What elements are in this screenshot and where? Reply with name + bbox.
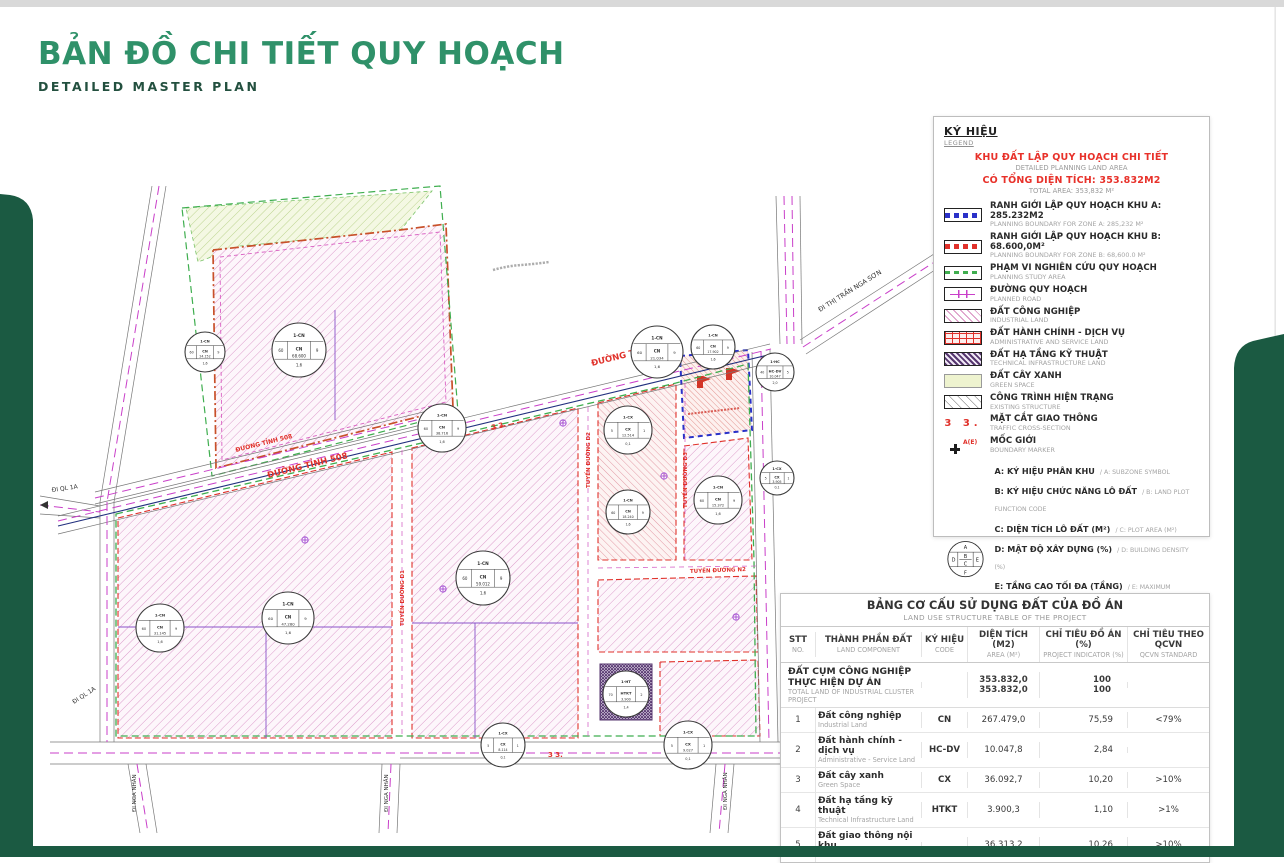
svg-text:1-CX: 1-CX [683, 729, 693, 734]
svg-text:60: 60 [696, 346, 700, 350]
svg-text:1-CN: 1-CN [282, 602, 294, 607]
svg-text:CN: CN [715, 496, 721, 501]
svg-text:9: 9 [727, 346, 729, 350]
legend-item-existing: CÔNG TRÌNH HIỆN TRẠNGEXISTING STRUCTURE [944, 394, 1199, 411]
dest-nga-nhan: ĐI NGA NHÂN [722, 772, 729, 810]
svg-text:2,0: 2,0 [772, 381, 777, 385]
svg-text:CX: CX [625, 426, 631, 431]
title-block: BẢN ĐỒ CHI TIẾT QUY HOẠCH DETAILED MASTE… [38, 36, 565, 94]
legend-panel: KÝ HIỆU LEGEND KHU ĐẤT LẬP QUY HOẠCH CHI… [933, 116, 1210, 537]
svg-text:0,1: 0,1 [774, 486, 779, 490]
svg-text:CN: CN [480, 575, 487, 581]
svg-text:CN: CN [157, 624, 163, 629]
svg-text:2: 2 [640, 693, 642, 697]
svg-text:CN: CN [710, 344, 716, 348]
svg-text:0,1: 0,1 [500, 756, 505, 760]
svg-text:60: 60 [268, 616, 273, 621]
svg-text:CX: CX [685, 741, 691, 746]
existing-site-annotation [493, 262, 549, 270]
svg-text:E: E [976, 557, 979, 563]
road-label-d1: TUYẾN ĐƯỜNG D1 [398, 570, 406, 626]
svg-text:0,1: 0,1 [625, 442, 631, 446]
svg-text:60: 60 [278, 348, 284, 353]
svg-text:5: 5 [787, 371, 789, 375]
legend-item-planned-road: ĐƯỜNG QUY HOẠCHPLANNED ROAD [944, 286, 1199, 303]
table-title: BẢNG CƠ CẤU SỬ DỤNG ĐẤT CỦA ĐỒ ÁN LAND U… [781, 594, 1209, 627]
legend-kicker-en: DETAILED PLANNING LAND AREA [944, 164, 1199, 172]
svg-text:9: 9 [175, 627, 177, 631]
svg-text:1-CN: 1-CN [651, 336, 663, 341]
legend-item-zone-b: RANH GIỚI LẬP QUY HOẠCH KHU B: 68.600,0M… [944, 233, 1199, 260]
svg-text:1: 1 [787, 476, 789, 480]
legend-heading-en: LEGEND [944, 139, 1199, 147]
svg-text:15.372: 15.372 [712, 504, 724, 508]
boundary-marker-icon: A(E) [944, 439, 982, 453]
svg-text:38.716: 38.716 [436, 432, 449, 436]
legend-total-en: TOTAL AREA: 353,832 M² [944, 187, 1199, 195]
svg-text:1,6: 1,6 [710, 358, 715, 362]
land-use-table: BẢNG CƠ CẤU SỬ DỤNG ĐẤT CỦA ĐỒ ÁN LAND U… [780, 593, 1210, 863]
industrial-land-swatch [944, 309, 982, 323]
svg-text:5: 5 [765, 476, 767, 480]
svg-text:21.034: 21.034 [650, 355, 664, 360]
green-space-swatch [944, 374, 982, 388]
svg-text:1,6: 1,6 [285, 630, 292, 635]
dest-nga-son: ĐI THỊ TRẤN NGA SƠN [816, 266, 883, 313]
svg-text:CN: CN [654, 349, 661, 354]
svg-text:9: 9 [217, 351, 219, 355]
svg-text:5: 5 [611, 429, 613, 433]
svg-text:1-HC: 1-HC [770, 360, 780, 364]
svg-text:CX: CX [500, 742, 506, 746]
svg-text:60: 60 [700, 499, 704, 503]
legend-item-zone-a: RANH GIỚI LẬP QUY HOẠCH KHU A: 285.232M2… [944, 202, 1199, 229]
existing-structure-swatch [944, 395, 982, 409]
svg-text:1,6: 1,6 [715, 512, 721, 516]
svg-text:8.114: 8.114 [498, 748, 507, 752]
svg-text:59.012: 59.012 [476, 582, 490, 587]
planned-road-swatch [944, 287, 982, 301]
parcel-zone-b [213, 224, 453, 468]
svg-text:3.905: 3.905 [772, 480, 781, 484]
svg-text:C: C [964, 561, 968, 567]
svg-text:60: 60 [611, 511, 615, 515]
svg-text:1,6: 1,6 [625, 523, 630, 527]
legend-kicker: KHU ĐẤT LẬP QUY HOẠCH CHI TIẾT [944, 152, 1199, 163]
plot-key-a: A: KÝ HIỆU PHÂN KHU / A: SUBZONE SYMBOL [995, 461, 1200, 478]
road-arrow [40, 501, 48, 509]
dest-ql1a-west: ĐI QL 1A [51, 483, 79, 494]
legend-total: CÓ TỔNG DIỆN TÍCH: 353.832M2 [944, 175, 1199, 186]
svg-text:60: 60 [190, 351, 194, 355]
legend-item-technical: ĐẤT HẠ TẦNG KỸ THUẬTTECHNICAL INFRASTRUC… [944, 351, 1199, 368]
dest-nga-nhan: ĐI NGA NHÂN [131, 774, 138, 812]
svg-text:18.240: 18.240 [622, 515, 633, 519]
svg-text:HC-DV: HC-DV [769, 369, 782, 373]
plot-key-b: B: KÝ HIỆU CHỨC NĂNG LÔ ĐẤT / B: LAND PL… [995, 481, 1200, 515]
svg-text:10.047: 10.047 [769, 374, 780, 378]
master-plan-page: ĐƯỜNG TỈNH 508 ĐƯỜNG TỈNH 508 ĐƯỜNG TỈNH… [0, 0, 1284, 857]
svg-text:3.900: 3.900 [621, 697, 631, 701]
svg-text:1,6: 1,6 [439, 440, 445, 444]
svg-text:1-CN: 1-CN [155, 612, 165, 617]
svg-text:60: 60 [142, 627, 146, 631]
svg-text:F: F [964, 570, 967, 576]
svg-text:1: 1 [643, 429, 645, 433]
svg-text:47.280: 47.280 [281, 621, 295, 626]
legend-item-cross-section: 3 3. MẶT CẮT GIAO THÔNGTRAFFIC CROSS-SEC… [944, 415, 1199, 432]
svg-text:1-CX: 1-CX [623, 414, 633, 419]
legend-heading: KÝ HIỆU [944, 125, 1199, 138]
legend-item-industrial: ĐẤT CÔNG NGHIỆPINDUSTRIAL LAND [944, 308, 1199, 325]
svg-text:CN: CN [625, 509, 631, 513]
svg-text:1,4: 1,4 [623, 705, 628, 709]
svg-text:60: 60 [462, 576, 468, 581]
svg-text:3 3.: 3 3. [548, 751, 563, 759]
svg-text:17.902: 17.902 [707, 350, 718, 354]
svg-text:9: 9 [642, 511, 644, 515]
svg-text:1-CN: 1-CN [200, 339, 209, 343]
svg-text:31.145: 31.145 [154, 632, 166, 636]
dest-ql1a-south: ĐI QL 1A [71, 685, 98, 706]
svg-text:1-CN: 1-CN [437, 412, 447, 417]
page-subtitle: DETAILED MASTER PLAN [38, 79, 565, 94]
svg-text:60: 60 [424, 427, 428, 431]
svg-text:5: 5 [487, 744, 489, 748]
svg-text:1-CX: 1-CX [772, 467, 781, 471]
svg-text:60: 60 [637, 350, 642, 355]
svg-text:1-CN: 1-CN [477, 561, 489, 567]
svg-text:1,6: 1,6 [480, 591, 487, 596]
cross-section-swatch: 3 3. [944, 417, 982, 431]
page-title: BẢN ĐỒ CHI TIẾT QUY HOẠCH [38, 36, 565, 72]
plot-key-c: C: DIỆN TÍCH LÔ ĐẤT (M²) / C: PLOT AREA … [995, 519, 1200, 536]
zone-b-boundary-swatch [944, 240, 982, 254]
svg-text:1-CN: 1-CN [623, 498, 632, 502]
svg-text:1-CN: 1-CN [713, 484, 723, 489]
svg-text:24.152: 24.152 [199, 355, 210, 359]
svg-text:40: 40 [760, 371, 764, 375]
plot-circle-diagram: A D B C E F [944, 524, 989, 588]
table-row: 4 Đất hạ tầng kỹ thuậtTechnical Infrastr… [781, 793, 1209, 828]
table-row: 3 Đất cây xanhGreen Space CX 36.092,7 10… [781, 768, 1209, 793]
svg-text:CX: CX [774, 475, 780, 479]
legend-item-study: PHẠM VI NGHIÊN CỨU QUY HOẠCHPLANNING STU… [944, 264, 1199, 281]
svg-text:68.600: 68.600 [292, 354, 306, 359]
road-label-d2: TUYẾN ĐƯỜNG D2 [584, 432, 592, 488]
svg-text:HTKT: HTKT [621, 691, 632, 695]
table-header-row: STTNO. THÀNH PHẦN ĐẤTLAND COMPONENT KÝ H… [781, 627, 1209, 663]
zone-a-boundary-swatch [944, 208, 982, 222]
svg-text:CN: CN [285, 615, 292, 620]
svg-text:1,6: 1,6 [296, 363, 303, 368]
svg-text:70: 70 [608, 693, 612, 697]
svg-text:1-CN: 1-CN [293, 333, 305, 339]
survey-cross-icon [950, 444, 960, 454]
svg-text:1: 1 [517, 744, 519, 748]
table-row: 2 Đất hành chính - dịch vụAdministrative… [781, 733, 1209, 768]
legend-item-boundary-marker: A(E) MỐC GIỚIBOUNDARY MARKER [944, 437, 1199, 454]
svg-text:12.514: 12.514 [622, 434, 635, 438]
svg-text:A: A [964, 545, 968, 551]
svg-text:1: 1 [703, 744, 705, 748]
road-label-d3: TUYẾN ĐƯỜNG D3 [681, 452, 689, 508]
study-area-swatch [944, 266, 982, 280]
svg-text:CN: CN [202, 349, 208, 353]
table-summary-row: ĐẤT CỤM CÔNG NGHIỆP THỰC HIỆN DỰ ÁNTOTAL… [781, 663, 1209, 708]
admin-service-land-swatch [944, 331, 982, 345]
svg-text:5: 5 [671, 744, 673, 748]
svg-text:B: B [964, 554, 968, 560]
svg-text:9: 9 [733, 499, 735, 503]
svg-text:CN: CN [296, 347, 303, 353]
svg-text:D: D [952, 557, 956, 563]
dest-nga-nhan: ĐI NGA NHÂN [383, 774, 390, 812]
legend-item-green-space: ĐẤT CÂY XANHGREEN SPACE [944, 372, 1199, 389]
svg-text:1-CX: 1-CX [498, 731, 507, 735]
svg-text:9.027: 9.027 [683, 749, 693, 753]
svg-text:1-CN: 1-CN [708, 333, 717, 337]
plot-key-d: D: MẬT ĐỘ XÂY DỰNG (%) / D: BUILDING DEN… [995, 539, 1200, 573]
legend-item-admin-service: ĐẤT HÀNH CHÍNH - DỊCH VỤADMINISTRATIVE A… [944, 329, 1199, 346]
svg-text:9: 9 [457, 427, 459, 431]
table-row: 1 Đất công nghiệpIndustrial Land CN 267.… [781, 708, 1209, 733]
svg-text:CN: CN [439, 424, 445, 429]
technical-land-swatch [944, 352, 982, 366]
svg-text:1,6: 1,6 [157, 640, 163, 644]
svg-text:0,1: 0,1 [685, 757, 691, 761]
svg-text:1,6: 1,6 [654, 364, 661, 369]
svg-text:1-HT: 1-HT [621, 680, 631, 684]
svg-text:1,6: 1,6 [202, 361, 207, 365]
